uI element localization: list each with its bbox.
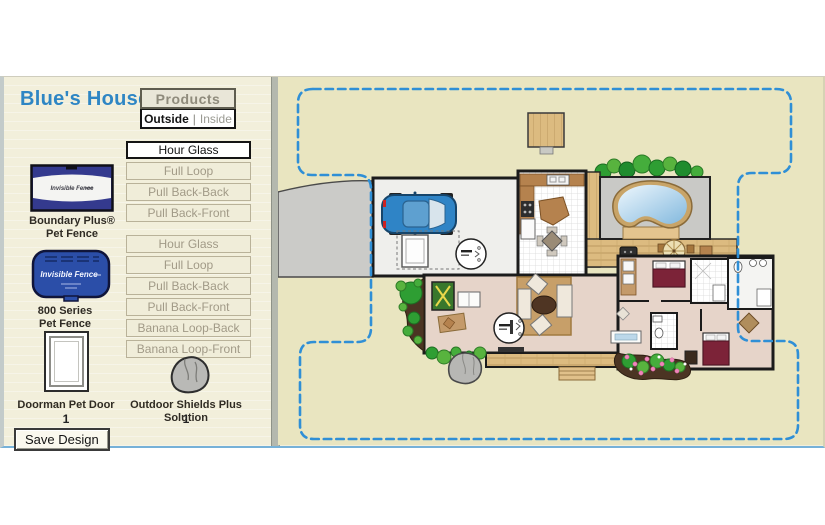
tab-inside[interactable]: Inside <box>200 112 232 126</box>
transmitter-unit-living[interactable] <box>494 313 524 343</box>
dresser <box>685 351 697 364</box>
layout-button-full-loop-1[interactable]: Full Loop <box>126 162 251 180</box>
fridge <box>521 219 535 239</box>
bed-2 <box>703 333 729 365</box>
doorman-pet-door-image[interactable] <box>44 331 89 392</box>
driveway <box>278 181 373 277</box>
tab-separator: | <box>193 112 196 126</box>
boundary-plus-label-line1: Boundary Plus® <box>7 215 137 228</box>
kitchen <box>518 171 586 276</box>
stove <box>521 201 534 217</box>
boundary-plus-product-image[interactable]: Invisible Fence <box>30 164 114 212</box>
screenshot-stage: Blue's House Products Outside | Inside H… <box>0 0 825 525</box>
series-800-product-image[interactable]: Invisible Fence <box>31 249 111 303</box>
outdoor-shields-rock-image[interactable] <box>164 353 212 395</box>
boundary-plus-label-line2: Pet Fence <box>7 228 137 241</box>
layout-button-banana-loop-back[interactable]: Banana Loop-Back <box>126 319 251 337</box>
layout-button-pull-back-front-2[interactable]: Pull Back-Front <box>126 298 251 316</box>
bedroom-wing <box>611 256 773 369</box>
window-seat <box>611 331 641 343</box>
doorman-label: Doorman Pet Door <box>1 399 131 412</box>
boundary-plus-brand-text: Invisible Fence <box>50 186 94 192</box>
series-800-label-line1: 800 Series <box>0 305 130 318</box>
location-tabs: Outside | Inside <box>140 109 236 129</box>
series-800-label-line2: Pet Fence <box>0 318 130 331</box>
desk <box>438 313 466 332</box>
living-room <box>424 273 618 353</box>
save-design-button[interactable]: Save Design <box>14 428 110 451</box>
layout-button-hour-glass-2[interactable]: Hour Glass <box>126 235 251 253</box>
transmitter-unit-garage[interactable] <box>456 239 486 269</box>
pool-steps <box>623 227 679 239</box>
sofa-right <box>557 285 572 317</box>
sofa-left <box>518 289 531 319</box>
outdoor-shields-count: 1 <box>121 412 251 426</box>
layout-button-pull-back-back-1[interactable]: Pull Back-Back <box>126 183 251 201</box>
layout-button-pull-back-back-2[interactable]: Pull Back-Back <box>126 277 251 295</box>
map-area: Total Amount 180.00 <box>278 77 823 445</box>
car <box>382 192 456 237</box>
design-app-window: Blue's House Products Outside | Inside H… <box>0 76 825 448</box>
doorman-count: 1 <box>1 412 131 426</box>
products-header: Products <box>140 88 236 109</box>
bed-1 <box>653 261 685 287</box>
floorplan-map <box>278 77 823 445</box>
layout-button-pull-back-front-1[interactable]: Pull Back-Front <box>126 204 251 222</box>
series-800-brand-text: Invisible Fence <box>40 270 98 279</box>
tab-outside[interactable]: Outside <box>144 112 189 126</box>
layout-button-full-loop-2[interactable]: Full Loop <box>126 256 251 274</box>
sidebar: Blue's House Products Outside | Inside H… <box>4 77 275 446</box>
layout-button-hour-glass-1[interactable]: Hour Glass <box>126 141 251 159</box>
outdoor-shield-rock[interactable] <box>449 353 482 384</box>
page-title: Blue's House <box>20 88 150 111</box>
coffee-table <box>532 296 556 314</box>
